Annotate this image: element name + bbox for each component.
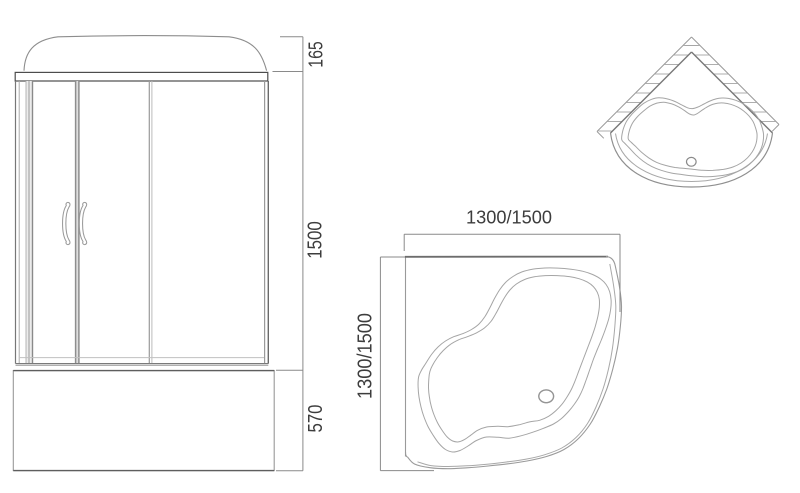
svg-text:1300/1500: 1300/1500 bbox=[466, 207, 552, 228]
svg-text:165: 165 bbox=[304, 41, 327, 68]
svg-text:1500: 1500 bbox=[303, 221, 326, 259]
svg-text:570: 570 bbox=[304, 405, 327, 433]
svg-text:1300/1500: 1300/1500 bbox=[353, 313, 376, 399]
